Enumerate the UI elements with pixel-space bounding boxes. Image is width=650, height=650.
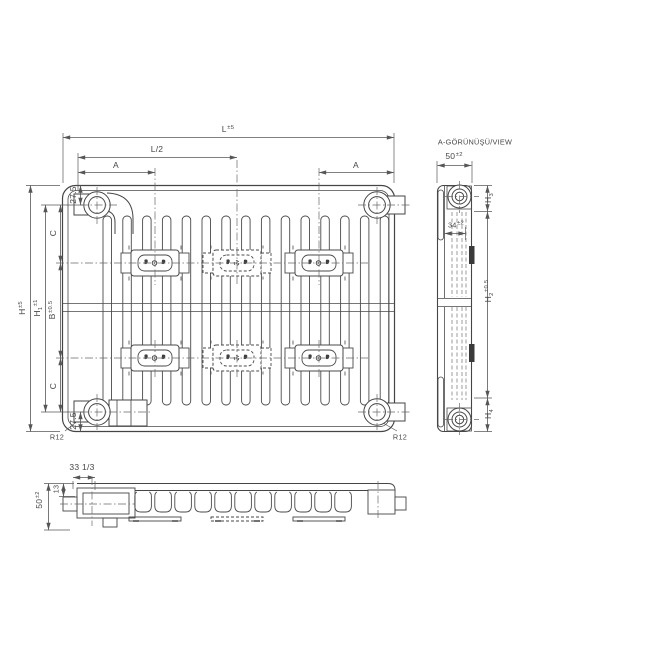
bottom-end-block-right bbox=[368, 490, 395, 514]
dim-a-left-label: A bbox=[113, 161, 119, 170]
dim-h1-label: H1±1 bbox=[33, 299, 43, 316]
dim-top-offset-label: 13 bbox=[52, 485, 59, 494]
dim-fin-pitch-label: 33 1/3 bbox=[69, 463, 94, 472]
convector-fins bbox=[135, 492, 352, 512]
side-view-title: A-GÖRÜNÜŞÜ/VIEW bbox=[438, 138, 512, 145]
drawing-sheet: L±5 L/2 A A H±5 H1±1 B±0.5 C C 27.5 27.5… bbox=[0, 0, 650, 650]
dim-bottom-depth-label: 50±2 bbox=[35, 491, 45, 508]
bottom-bracket-foot bbox=[103, 518, 117, 527]
side-bracket-tab-top bbox=[469, 246, 475, 264]
dim-half-length-label: L/2 bbox=[151, 145, 164, 154]
panel-channels bbox=[103, 216, 389, 405]
dim-h3-label: H3 bbox=[484, 193, 494, 203]
pipe-connection-bottom-left bbox=[74, 399, 147, 426]
dim-radius-right-label: R12 bbox=[393, 433, 407, 440]
side-panel-fin-bottom bbox=[438, 377, 444, 427]
side-bracket-tab-bottom bbox=[469, 344, 475, 362]
side-panel-fin-top bbox=[438, 190, 444, 240]
dim-h4-label: H4 bbox=[484, 409, 494, 419]
bracket-base-plates bbox=[129, 517, 345, 521]
drawing-canvas bbox=[0, 0, 650, 650]
dim-radius-left-label: R12 bbox=[50, 433, 64, 440]
dim-bracket-span-label: B±0.5 bbox=[48, 301, 58, 320]
dim-depth-label: 50±2 bbox=[445, 152, 462, 162]
bottom-view bbox=[44, 477, 406, 530]
bottom-connection-stub-right bbox=[395, 497, 406, 510]
front-view bbox=[26, 133, 410, 432]
dim-c-top-label: C bbox=[49, 230, 58, 236]
dim-height-label: H±5 bbox=[18, 301, 28, 315]
dim-inner-offset-label: 34±2 bbox=[448, 222, 464, 231]
bottom-body bbox=[63, 484, 406, 528]
dim-edge-top-label: 27.5 bbox=[69, 186, 78, 204]
radiator-panel bbox=[63, 186, 395, 432]
dim-c-bottom-label: C bbox=[49, 383, 58, 389]
dim-edge-bottom-label: 27.5 bbox=[69, 412, 78, 430]
dim-h2-label: H2±0.5 bbox=[484, 280, 494, 303]
dim-a-right-label: A bbox=[353, 161, 359, 170]
dim-length-label: L±5 bbox=[222, 125, 234, 135]
